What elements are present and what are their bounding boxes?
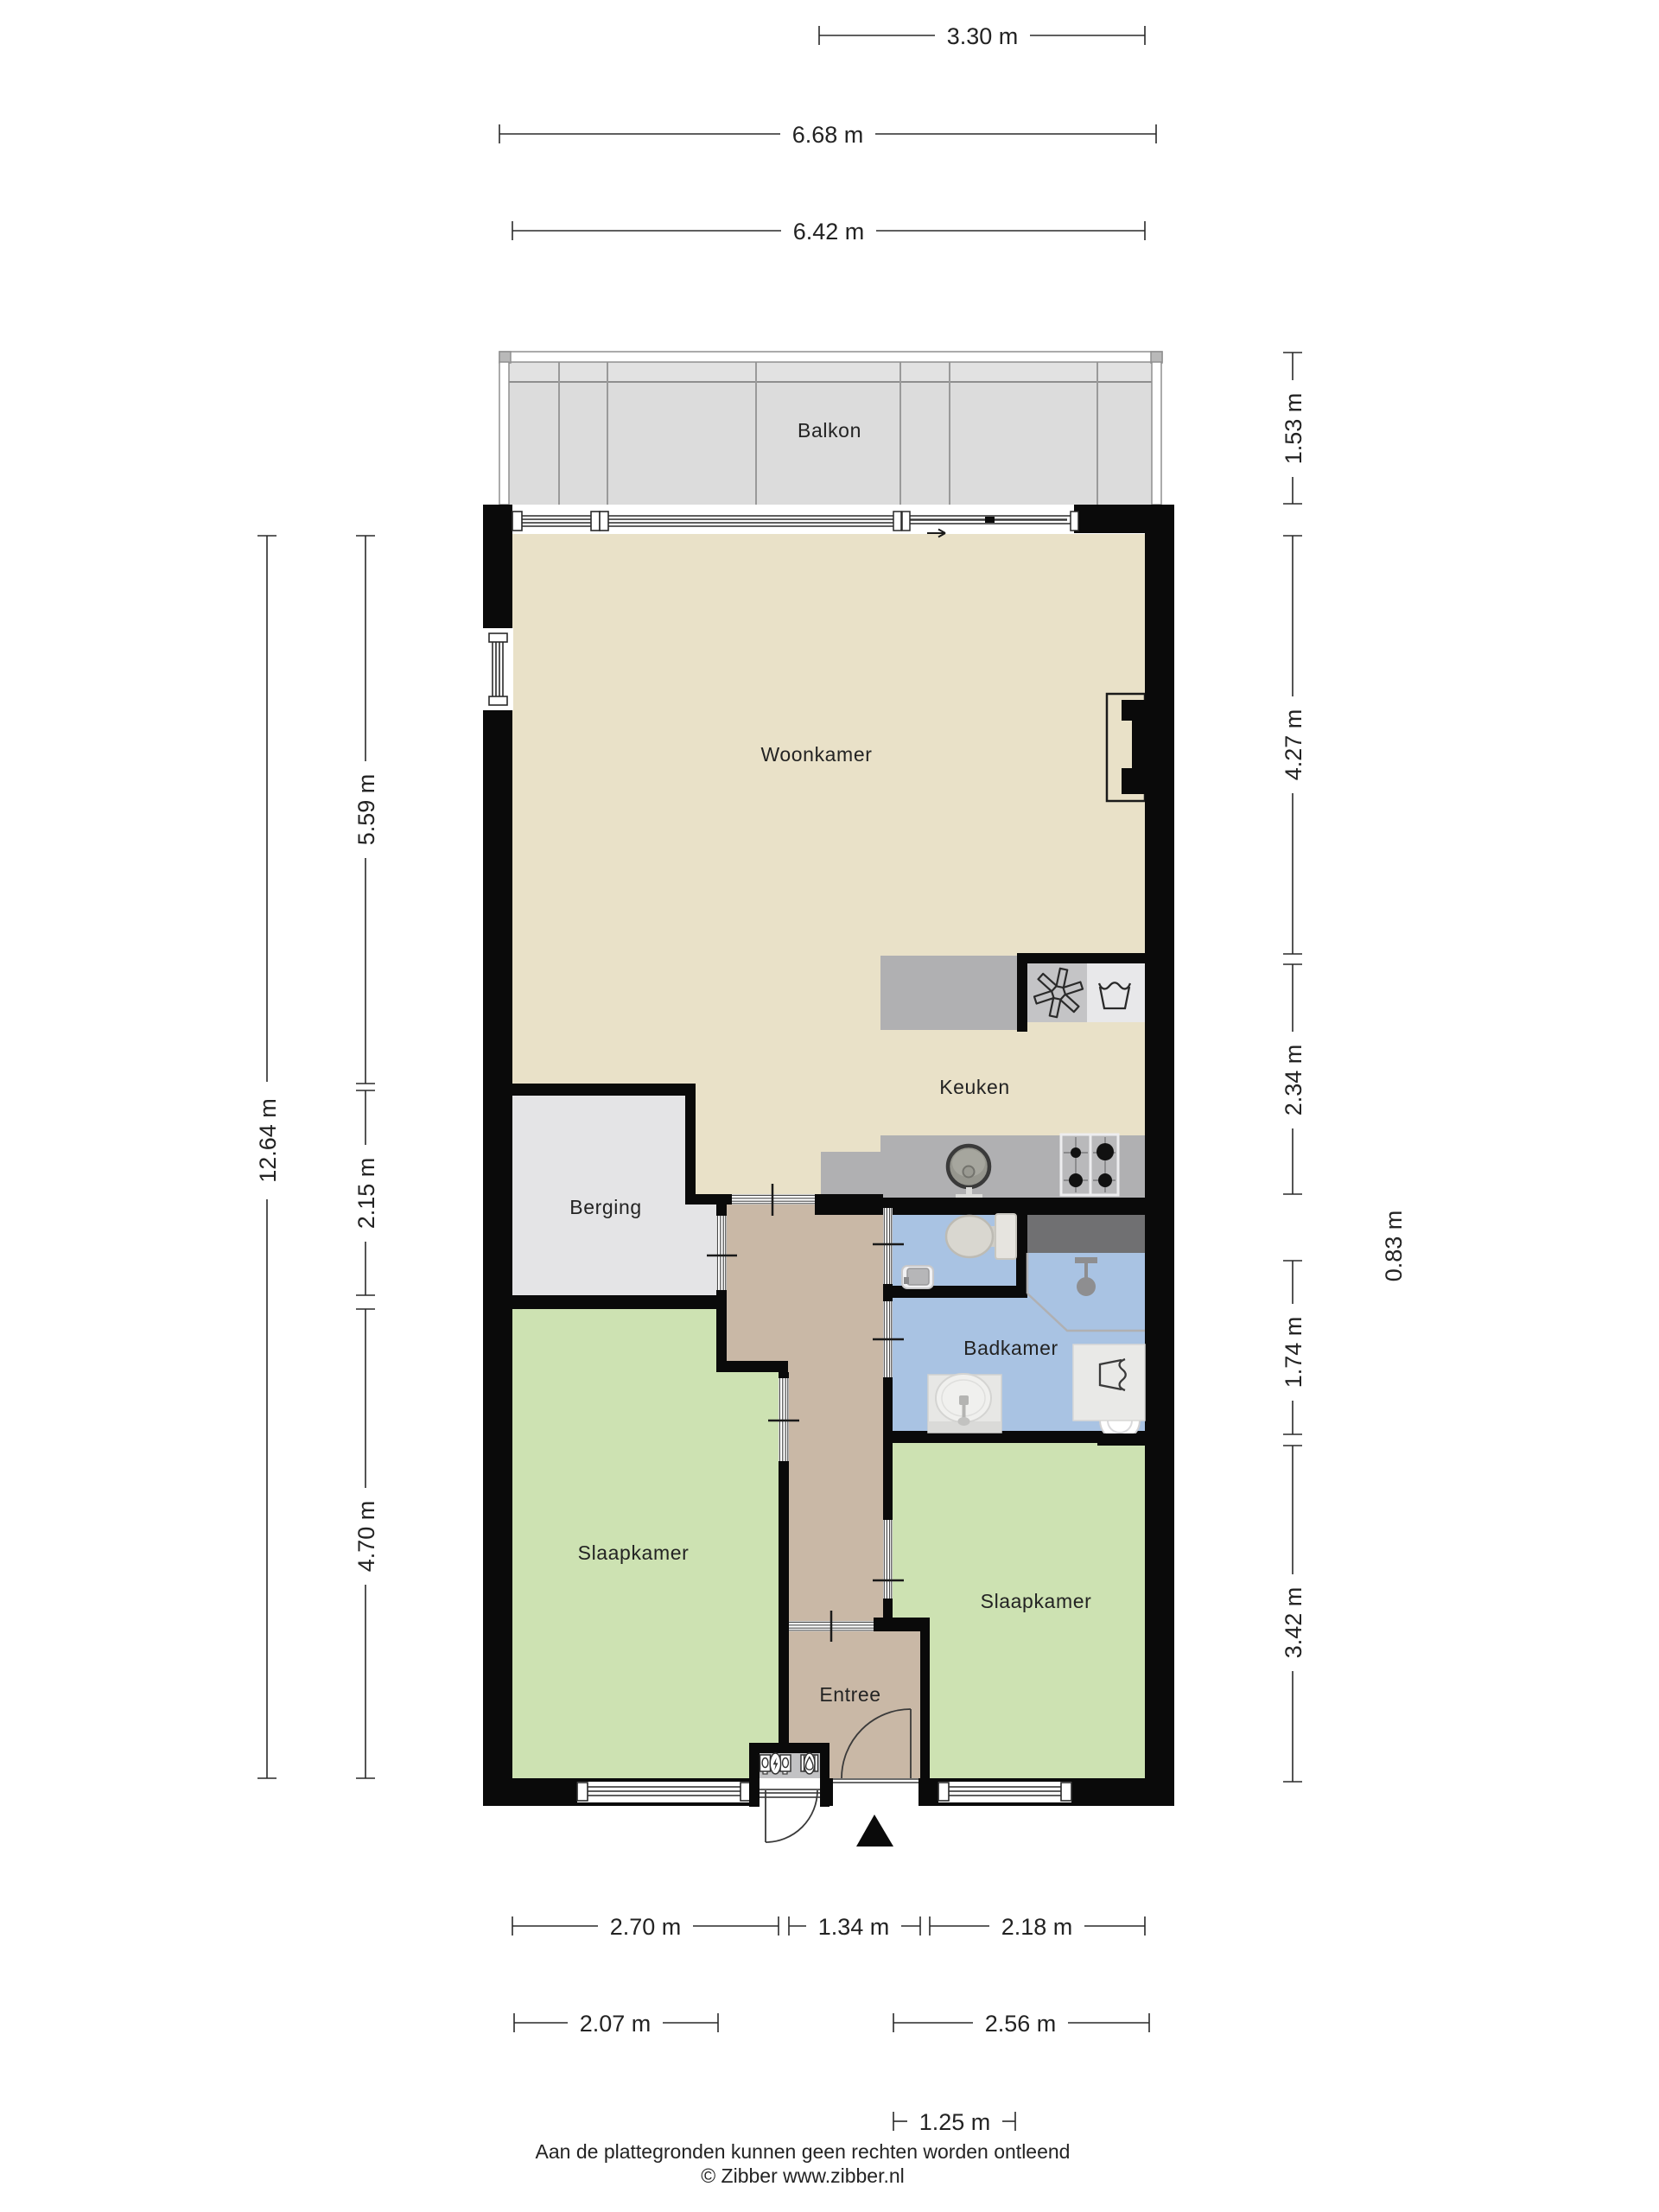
svg-text:Keuken: Keuken — [939, 1076, 1010, 1098]
svg-text:2.70 m: 2.70 m — [610, 1914, 682, 1940]
svg-text:3.42 m: 3.42 m — [1281, 1587, 1306, 1659]
svg-text:1.74 m: 1.74 m — [1281, 1317, 1306, 1389]
svg-text:2.34 m: 2.34 m — [1281, 1045, 1306, 1116]
svg-text:3.30 m: 3.30 m — [947, 23, 1019, 49]
svg-text:2.56 m: 2.56 m — [985, 2011, 1057, 2037]
svg-text:Woonkamer: Woonkamer — [761, 743, 873, 766]
svg-text:2.15 m: 2.15 m — [353, 1158, 379, 1230]
svg-text:1.34 m: 1.34 m — [818, 1914, 890, 1940]
svg-text:6.68 m: 6.68 m — [792, 122, 864, 148]
svg-text:5.59 m: 5.59 m — [353, 774, 379, 846]
svg-text:2.18 m: 2.18 m — [1001, 1914, 1073, 1940]
svg-text:Badkamer: Badkamer — [963, 1337, 1058, 1359]
svg-text:2.07 m: 2.07 m — [580, 2011, 652, 2037]
svg-text:Slaapkamer: Slaapkamer — [981, 1590, 1092, 1612]
svg-text:Slaapkamer: Slaapkamer — [578, 1541, 690, 1564]
svg-text:6.42 m: 6.42 m — [793, 219, 865, 245]
svg-text:© Zibber www.zibber.nl: © Zibber www.zibber.nl — [701, 2164, 905, 2187]
svg-text:Aan de plattegronden kunnen ge: Aan de plattegronden kunnen geen rechten… — [536, 2140, 1071, 2163]
svg-text:1.53 m: 1.53 m — [1281, 393, 1306, 465]
svg-text:Berging: Berging — [569, 1196, 641, 1218]
svg-text:12.64 m: 12.64 m — [255, 1098, 281, 1183]
svg-text:Entree: Entree — [819, 1683, 880, 1706]
svg-text:4.27 m: 4.27 m — [1281, 709, 1306, 781]
svg-text:0.83 m: 0.83 m — [1381, 1211, 1407, 1282]
svg-text:1.25 m: 1.25 m — [919, 2109, 991, 2135]
svg-text:Balkon: Balkon — [798, 419, 861, 442]
svg-text:4.70 m: 4.70 m — [353, 1501, 379, 1573]
